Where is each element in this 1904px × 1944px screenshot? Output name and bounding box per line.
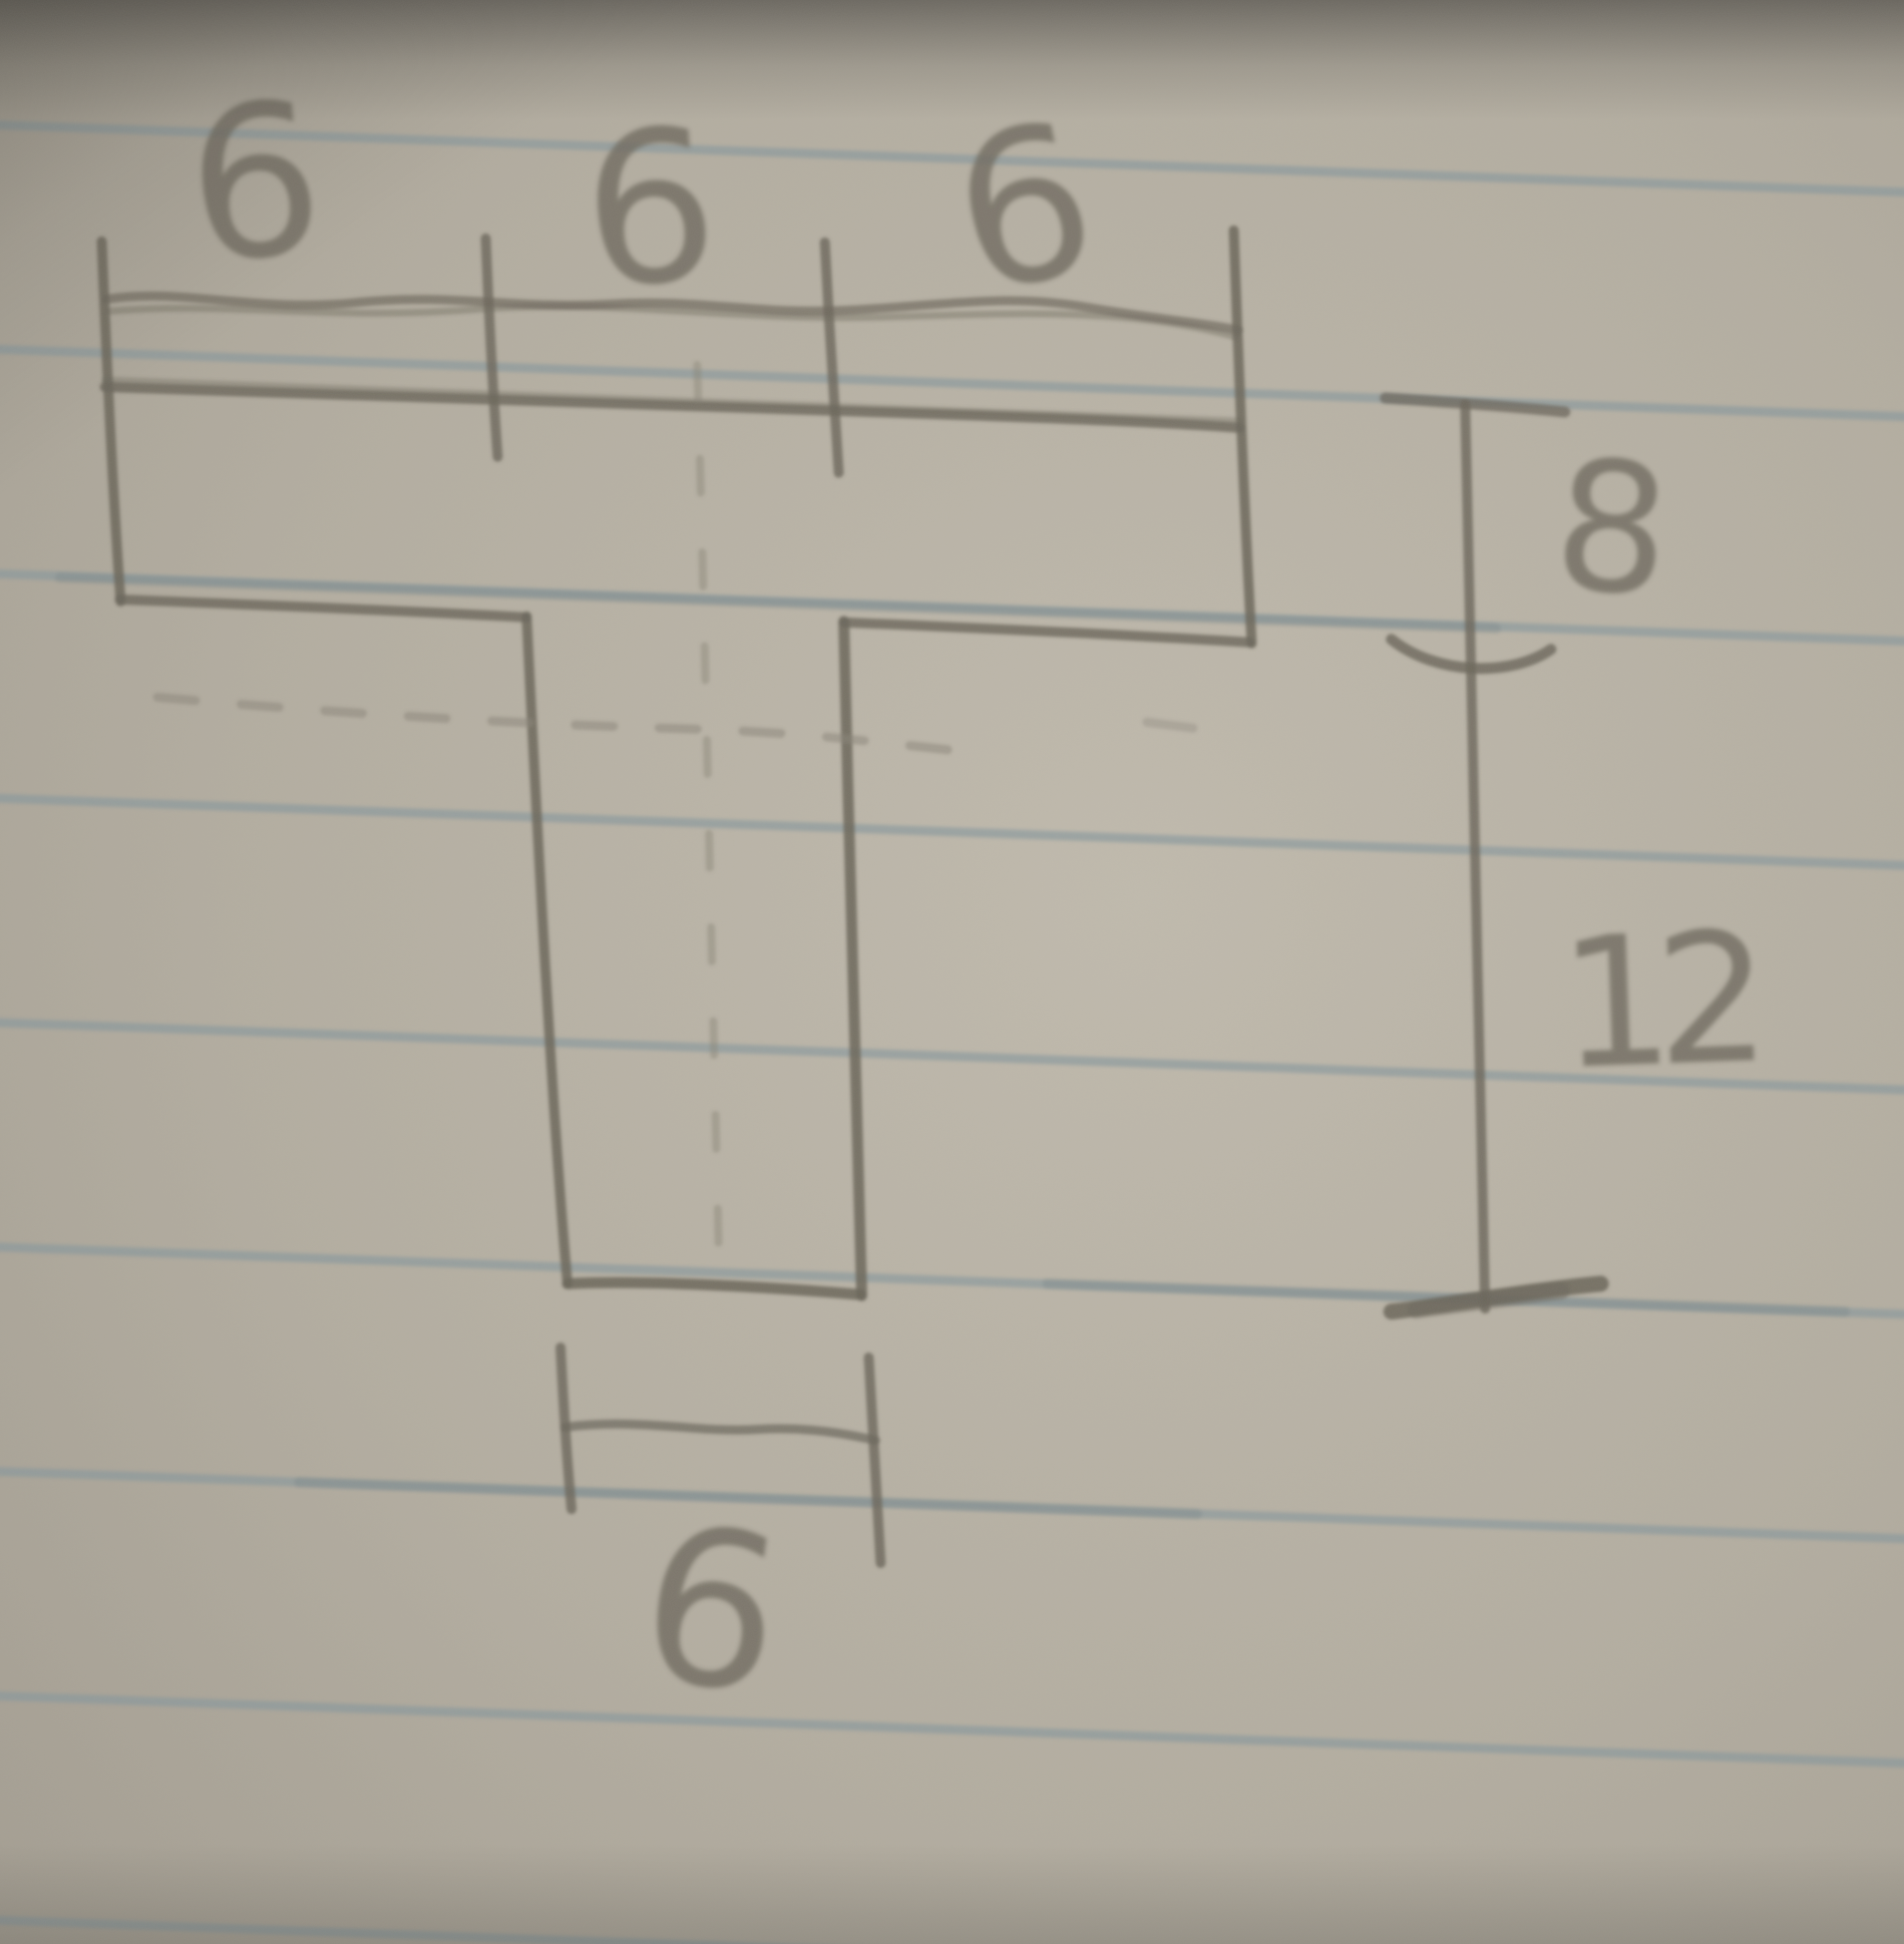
notebook-photo: 6 6 6 8 12 6 [0, 0, 1904, 1944]
photo-shading [0, 0, 1904, 1944]
t-section-sketch: 6 6 6 8 12 6 [0, 0, 1904, 1944]
film-grain [0, 0, 1904, 1944]
